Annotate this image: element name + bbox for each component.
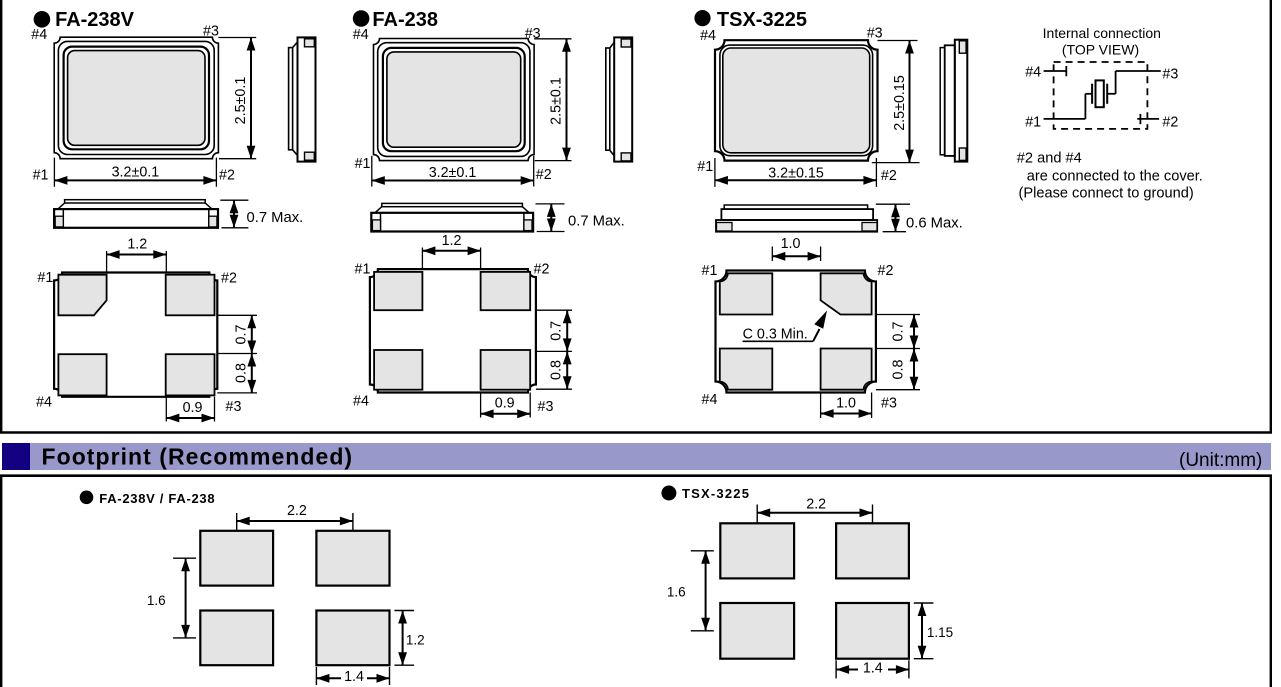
svg-text:0.8: 0.8: [891, 360, 907, 380]
svg-text:#3: #3: [881, 396, 897, 412]
svg-text:0.9: 0.9: [183, 400, 203, 416]
svg-text:#1: #1: [1025, 114, 1041, 130]
svg-text:(Please connect to ground): (Please connect to ground): [1019, 186, 1194, 202]
svg-text:1.15: 1.15: [927, 625, 953, 640]
svg-text:#2: #2: [534, 262, 550, 278]
svg-text:#2: #2: [221, 271, 237, 287]
svg-text:0.7: 0.7: [891, 322, 907, 342]
svg-text:#3: #3: [538, 399, 554, 415]
svg-text:#1: #1: [355, 262, 371, 278]
svg-text:2.2: 2.2: [287, 503, 307, 519]
svg-text:0.8: 0.8: [549, 360, 565, 380]
svg-text:#4: #4: [353, 27, 369, 43]
svg-text:#1: #1: [355, 156, 371, 172]
svg-text:FA-238V: FA-238V: [55, 9, 135, 31]
svg-text:0.6 Max.: 0.6 Max.: [906, 216, 963, 232]
svg-text:#3: #3: [867, 25, 883, 41]
svg-text:0.7 Max.: 0.7 Max.: [247, 210, 304, 226]
svg-text:#2 and #4: #2 and #4: [1017, 150, 1082, 166]
svg-text:#4: #4: [702, 392, 718, 408]
svg-text:#2: #2: [1162, 114, 1178, 130]
svg-text:1.6: 1.6: [147, 593, 166, 608]
svg-text:0.7: 0.7: [234, 325, 250, 345]
svg-text:3.2±0.1: 3.2±0.1: [429, 165, 477, 181]
svg-text:(TOP VIEW): (TOP VIEW): [1062, 42, 1139, 58]
svg-text:#3: #3: [203, 23, 219, 39]
svg-text:#2: #2: [219, 168, 235, 184]
svg-text:1.0: 1.0: [781, 236, 801, 252]
svg-text:3.2±0.1: 3.2±0.1: [112, 164, 160, 180]
svg-text:#4: #4: [36, 395, 52, 411]
svg-text:1.0: 1.0: [836, 396, 856, 412]
svg-text:Footprint (Recommended): Footprint (Recommended): [42, 443, 354, 469]
svg-text:2.5±0.1: 2.5±0.1: [549, 77, 565, 125]
svg-text:#1: #1: [37, 270, 53, 286]
svg-text:(Unit:mm): (Unit:mm): [1179, 450, 1262, 471]
svg-text:C 0.3 Min.: C 0.3 Min.: [743, 327, 808, 343]
svg-text:Internal connection: Internal connection: [1043, 25, 1161, 41]
svg-text:TSX-3225: TSX-3225: [682, 486, 750, 501]
svg-text:#2: #2: [881, 168, 897, 184]
svg-text:#4: #4: [353, 394, 369, 410]
svg-text:3.2±0.15: 3.2±0.15: [768, 166, 824, 182]
svg-text:1.2: 1.2: [406, 632, 425, 647]
svg-text:#4: #4: [1025, 65, 1041, 81]
svg-text:1.4: 1.4: [863, 660, 883, 676]
svg-text:0.7 Max.: 0.7 Max.: [568, 214, 625, 230]
svg-text:2.5±0.1: 2.5±0.1: [233, 77, 249, 125]
svg-text:FA-238: FA-238: [372, 9, 438, 31]
svg-text:are connected to the cover.: are connected to the cover.: [1027, 169, 1203, 185]
svg-text:0.7: 0.7: [549, 321, 565, 341]
svg-text:#3: #3: [525, 26, 541, 42]
svg-text:#3: #3: [1162, 67, 1178, 83]
svg-text:0.8: 0.8: [234, 363, 250, 383]
svg-text:#1: #1: [702, 263, 718, 279]
svg-text:2.2: 2.2: [806, 497, 826, 513]
svg-text:FA-238V / FA-238: FA-238V / FA-238: [99, 491, 215, 506]
svg-text:#1: #1: [697, 159, 713, 175]
svg-text:#2: #2: [536, 167, 552, 183]
svg-text:1.4: 1.4: [344, 669, 364, 685]
svg-text:#4: #4: [700, 28, 716, 44]
svg-text:1.2: 1.2: [127, 237, 147, 253]
svg-text:#4: #4: [31, 27, 47, 43]
svg-text:#1: #1: [33, 168, 49, 184]
svg-text:2.5±0.15: 2.5±0.15: [892, 75, 908, 131]
svg-text:0.9: 0.9: [495, 395, 515, 411]
svg-text:TSX-3225: TSX-3225: [717, 9, 807, 31]
svg-text:1.2: 1.2: [442, 233, 462, 249]
svg-text:#2: #2: [878, 263, 894, 279]
svg-text:#3: #3: [226, 399, 242, 415]
svg-text:1.6: 1.6: [667, 584, 686, 599]
